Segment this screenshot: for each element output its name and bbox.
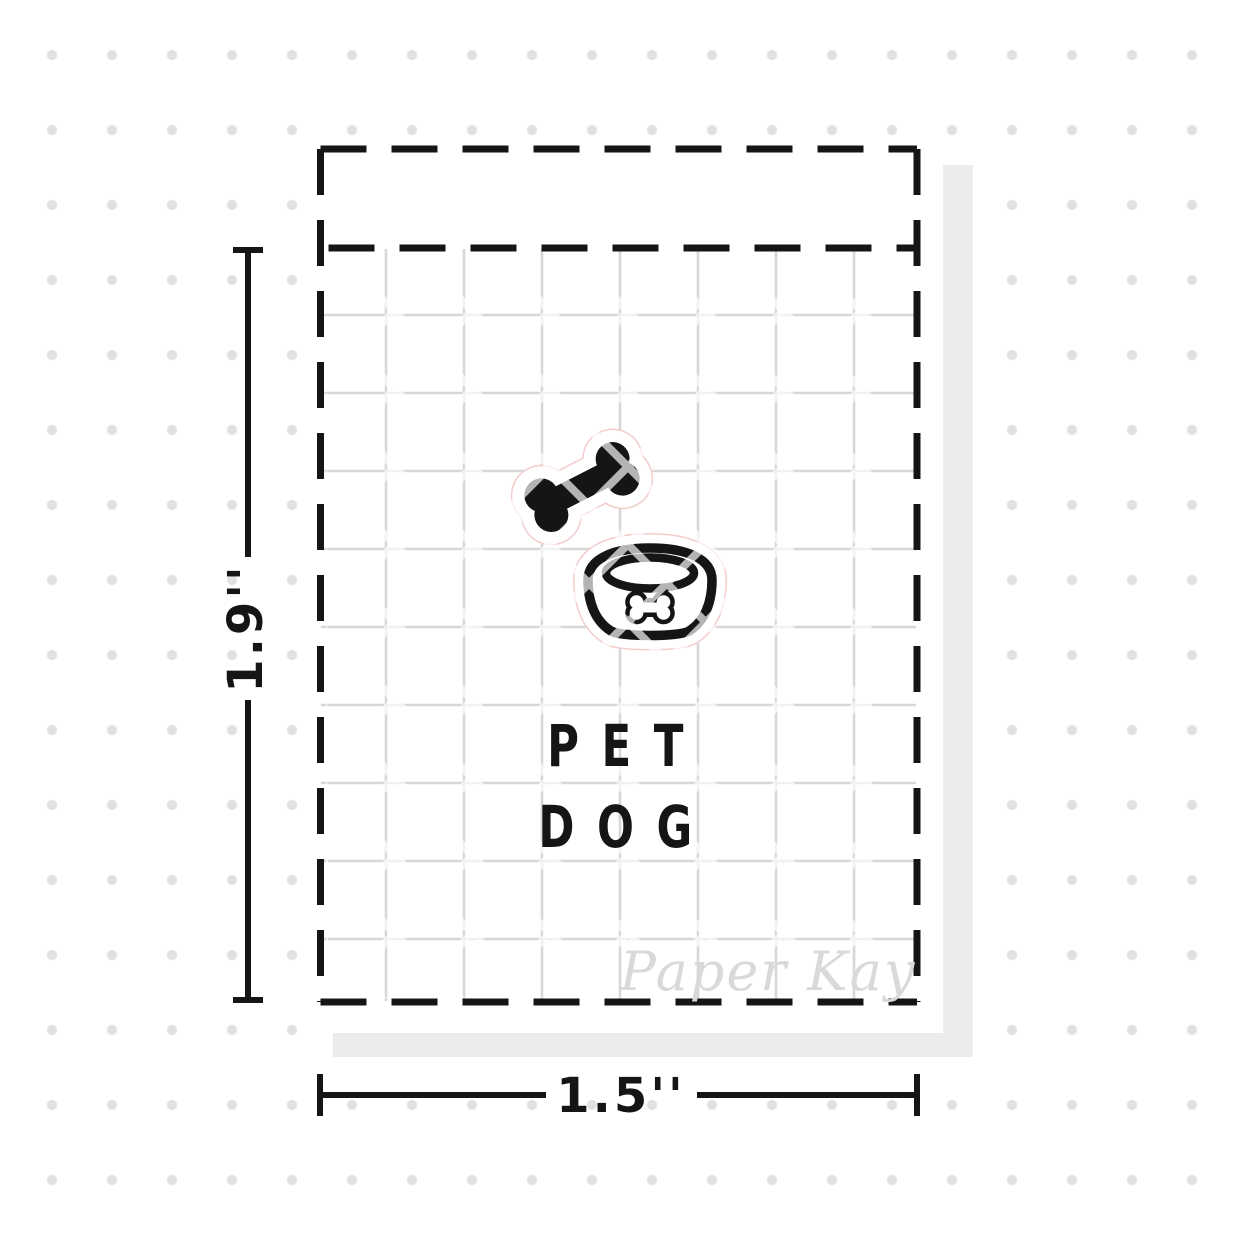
- sticker-mockup-graphic: PET DOG Paper Kay 1.9'' 1.5'': [0, 0, 1245, 1245]
- width-dimension-label: 1.5'': [556, 1068, 685, 1124]
- product-title-line2: DOG: [538, 794, 714, 862]
- svg-text:DOG: DOG: [538, 794, 714, 862]
- height-dimension-label: 1.9'': [218, 563, 274, 692]
- brand-watermark: Paper Kay: [619, 940, 917, 1003]
- svg-text:PET: PET: [547, 713, 706, 781]
- sticker-product-mockup: PET DOG Paper Kay 1.9'' 1.5'': [0, 0, 1245, 1245]
- width-dimension: 1.5'': [320, 1068, 917, 1124]
- diagonal-watermark-pattern: [326, 254, 911, 998]
- product-title-line1: PET: [547, 713, 706, 781]
- height-dimension: 1.9'': [218, 250, 274, 1000]
